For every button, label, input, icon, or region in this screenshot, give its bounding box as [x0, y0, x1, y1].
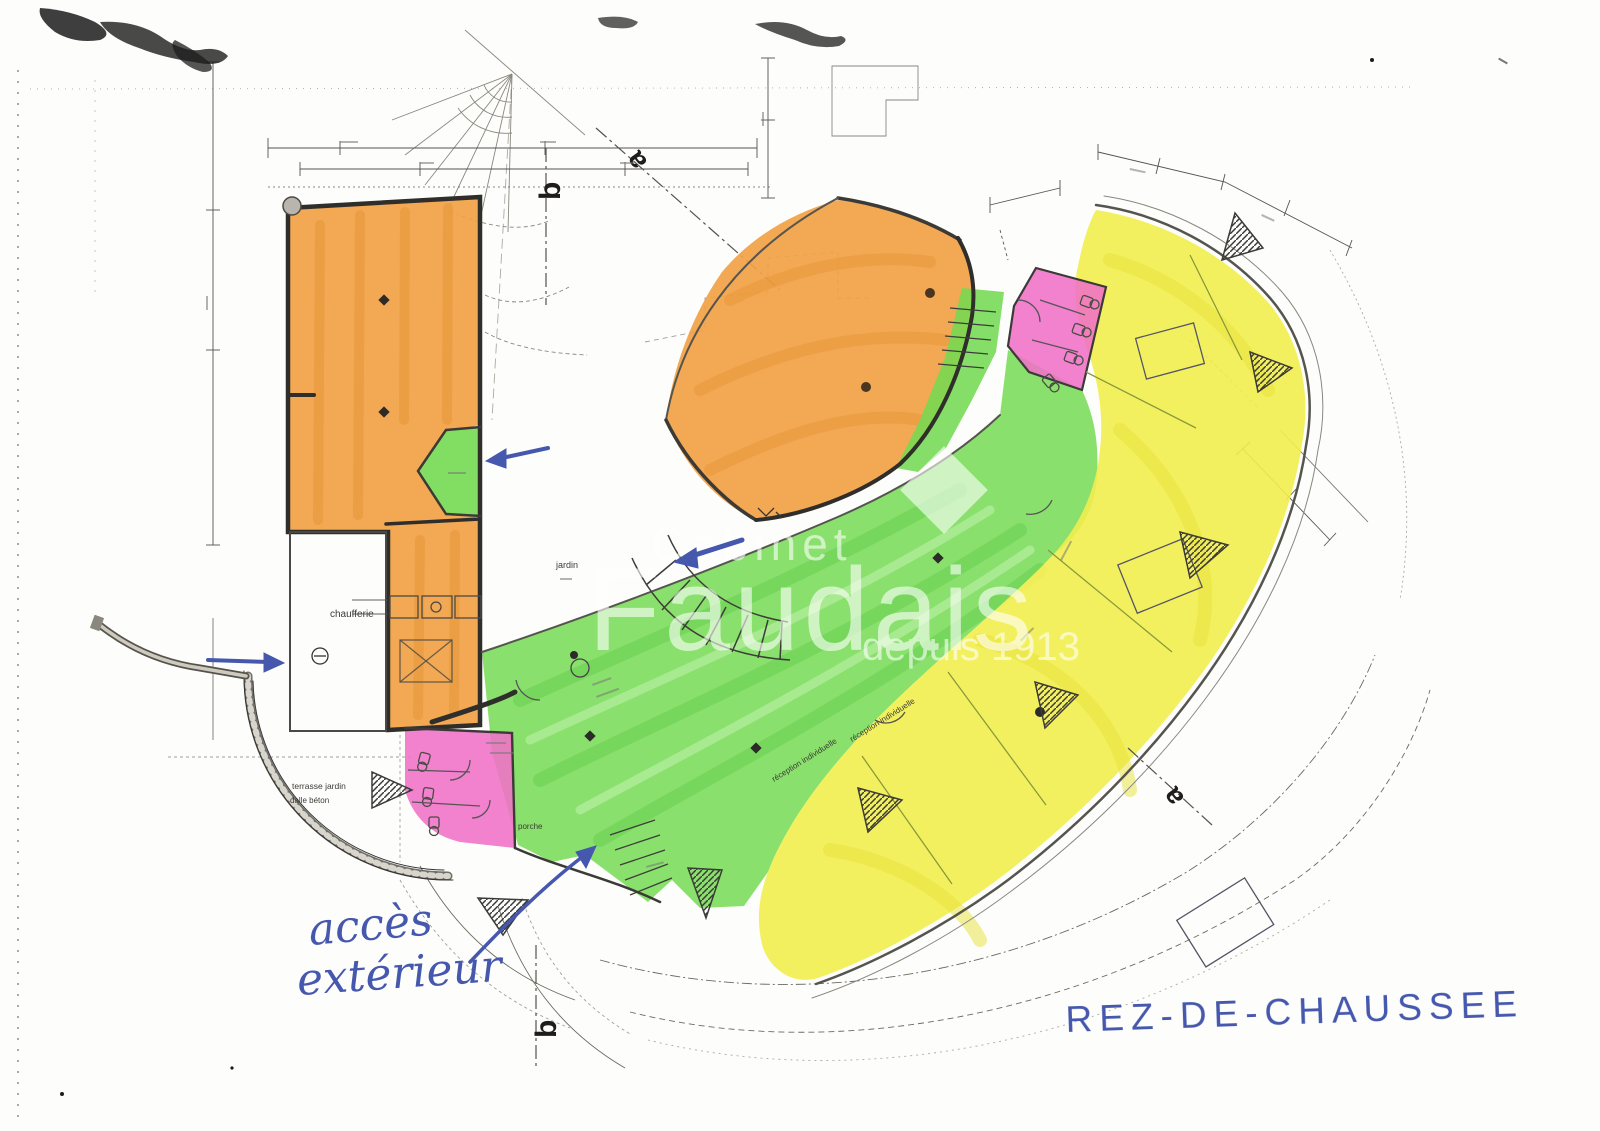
label-porche: porche	[518, 822, 543, 831]
annotation-floor-title: REZ-DE-CHAUSSEE	[1065, 983, 1525, 1040]
section-marker-b-top: b	[534, 182, 567, 200]
section-marker-b-bottom: b	[530, 1020, 563, 1038]
label-chaufferie: chaufferie	[330, 609, 374, 620]
label-terrasse: terrasse jardin	[292, 781, 346, 791]
floor-plan-drawing: b a b a chaufferie jardin porche terrass…	[0, 0, 1600, 1131]
arrow-into-left-building	[208, 660, 268, 662]
watermark-depuis: depuis 1913	[862, 625, 1080, 669]
section-marker-a-top: a	[618, 145, 653, 176]
arrow-into-vestibule	[502, 448, 548, 458]
label-dalle: dalle béton	[290, 796, 329, 805]
section-marker-a-right: a	[1155, 781, 1190, 812]
scanned-floor-plan-page: b a b a chaufferie jardin porche terrass…	[0, 0, 1600, 1131]
pink-zone-bottom	[405, 728, 515, 848]
label-jardin: jardin	[555, 560, 578, 570]
